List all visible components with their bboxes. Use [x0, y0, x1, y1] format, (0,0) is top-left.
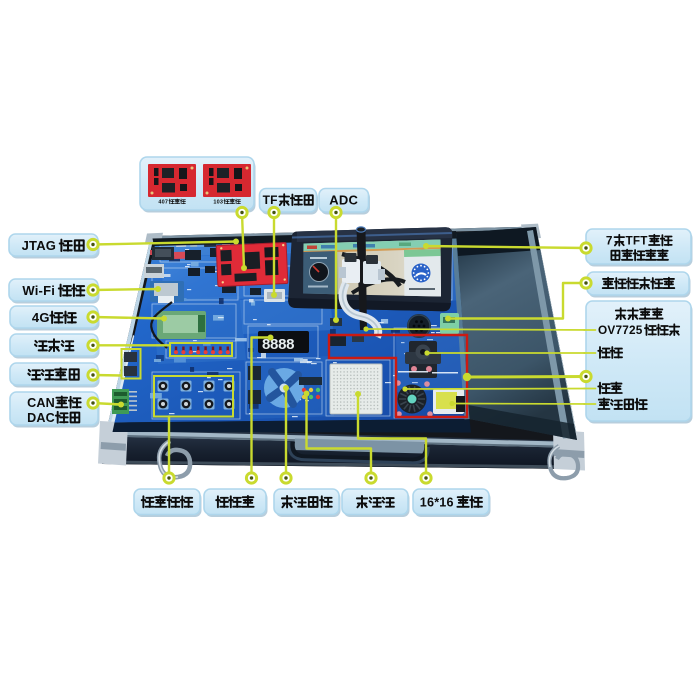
- svg-text:16*16: 16*16: [420, 495, 454, 509]
- svg-text:TF: TF: [263, 193, 278, 207]
- svg-text:CAN: CAN: [27, 396, 55, 410]
- svg-text:ADC: ADC: [329, 193, 358, 208]
- svg-text:DAC: DAC: [27, 411, 55, 425]
- svg-text:TFT: TFT: [626, 234, 649, 248]
- svg-text:407: 407: [158, 199, 168, 205]
- svg-text:4G: 4G: [32, 310, 50, 325]
- svg-text:JTAG: JTAG: [22, 238, 57, 253]
- svg-text:OV7725: OV7725: [598, 323, 643, 337]
- svg-text:103: 103: [213, 199, 223, 205]
- svg-text:7: 7: [606, 234, 613, 248]
- svg-text:Wi-Fi: Wi-Fi: [22, 283, 55, 298]
